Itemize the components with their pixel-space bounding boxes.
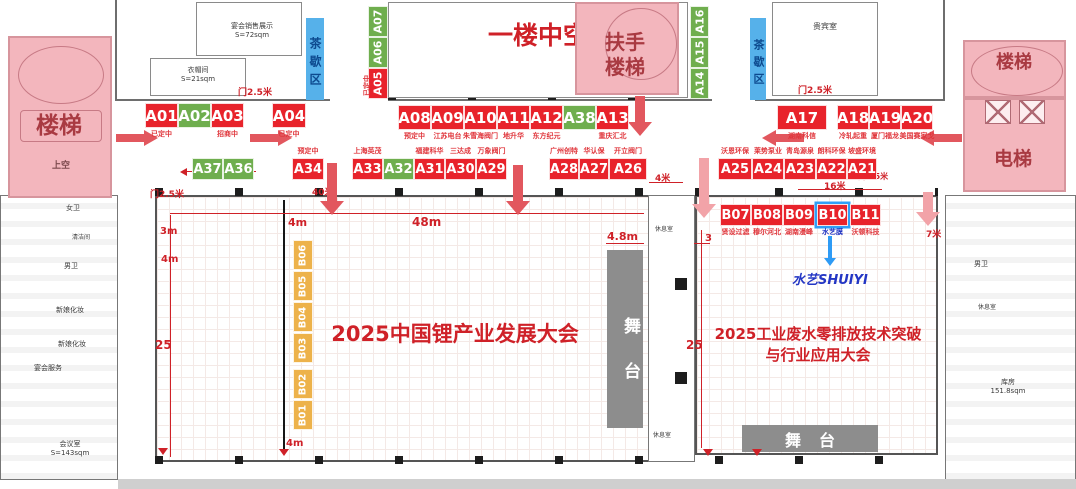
booth-label: A21: [848, 162, 876, 177]
dim-line-25-left: [170, 215, 171, 457]
booth-label: A22: [817, 162, 845, 177]
door-dim-c: 门2.5米: [150, 187, 184, 200]
dim-48m: 48m: [412, 215, 441, 229]
flow-arrow-down-corridor-icon: [692, 158, 716, 218]
dim-7mi: 7米: [926, 227, 941, 240]
booth-label: A18: [837, 109, 869, 127]
dim-4m-bottom: 4m: [286, 438, 303, 449]
service-strip-right: [945, 195, 1076, 480]
booth-label: A15: [693, 41, 706, 65]
booth-label: A32: [384, 162, 412, 177]
banquet-display-label: 宴会销售展示: [231, 22, 273, 30]
booth-label: A11: [497, 109, 529, 127]
bridal-makeup-2-label: 新娘化妆: [58, 340, 86, 348]
bottom-tick-3-icon: [752, 449, 762, 456]
booth-A26: A26: [609, 158, 647, 180]
booth-A04: A04: [272, 103, 306, 128]
spiral-stairs-label: 扶手楼梯: [602, 30, 648, 80]
booth-B07: B07: [720, 204, 751, 226]
booth-label: A36: [224, 162, 252, 177]
booth-note-A20: 美国赛家戈: [893, 133, 941, 140]
dim-4m-left: 4m: [161, 254, 178, 265]
dim-4mi: 4米: [655, 171, 670, 184]
cleaning-room-label: 清洁间: [72, 234, 90, 241]
booth-label: B04: [298, 306, 309, 328]
bottom-band: [118, 479, 1076, 489]
booth-A36: A36: [223, 158, 254, 180]
cloakroom-label: 衣帽间: [188, 66, 209, 74]
elevator-shaft-2: [1019, 100, 1045, 124]
booth-A33: A33: [352, 158, 383, 180]
stairs-right-label: 楼梯: [996, 48, 1032, 74]
booth-A34: A34: [292, 158, 324, 180]
booth-A13: A13: [596, 105, 629, 130]
dim-line-4-8m: [606, 243, 644, 244]
booth-note-B11: 沃顿科技: [842, 229, 889, 236]
corridor-center: [648, 195, 695, 462]
booth-label: A28: [550, 162, 578, 177]
booth-A03: A03: [211, 103, 244, 128]
corridor-column-2: [675, 372, 687, 384]
booth-B02: B02: [293, 369, 313, 399]
door-dim-a: 门2.5米: [238, 85, 272, 98]
dim-line-48m: [170, 213, 644, 214]
stage-right: 舞台: [742, 425, 878, 452]
booth-label: A12: [530, 109, 562, 127]
booth-note-A05: 已定中: [364, 75, 371, 96]
logo-pointer-arrow-icon: [824, 236, 836, 266]
booth-A28: A28: [549, 158, 579, 180]
booth-label: B11: [852, 208, 880, 223]
booth-label: A02: [178, 107, 210, 125]
booth-label: A08: [398, 109, 430, 127]
booth-A01: A01: [145, 103, 178, 128]
dim-line-row2-arrow-icon: [180, 168, 187, 176]
booth-label: B07: [722, 208, 750, 223]
banquet-service-label: 宴会服务: [34, 364, 62, 372]
lounge-mid-top-label: 休息室: [655, 226, 673, 233]
booth-label: A38: [563, 109, 595, 127]
booth-A22: A22: [816, 158, 847, 180]
storage-area: 151.8sqm: [991, 387, 1026, 395]
wall-top-left: [115, 99, 330, 101]
aisle-line: [283, 200, 285, 450]
storage-label: 库房: [1001, 378, 1015, 386]
mens-toilet-right-label: 男卫: [974, 260, 988, 268]
booth-note-A03: 招商中: [203, 131, 252, 138]
booth-label: A06: [372, 41, 385, 65]
dim-3m-left: 3m: [160, 226, 177, 237]
cloakroom-area: S=21sqm: [181, 75, 215, 83]
booth-B11: B11: [850, 204, 881, 226]
booth-A08: A08: [398, 105, 431, 130]
booth-A10: A10: [464, 105, 497, 130]
dim-25-right: 25: [686, 338, 703, 352]
booth-label: A27: [580, 162, 608, 177]
upper-void-label: 上空: [52, 158, 70, 171]
dim-3-right: 3: [705, 233, 712, 244]
stairs-left-label: 楼梯: [36, 106, 82, 140]
booth-A02: A02: [178, 103, 211, 128]
booth-label: B09: [785, 208, 813, 223]
wall-left-vert: [115, 0, 117, 100]
booth-label: A10: [464, 109, 496, 127]
booth-label: A13: [596, 109, 628, 127]
booth-label: A26: [614, 162, 642, 177]
booth-note-A04: 已定中: [264, 131, 314, 138]
booth-A11: A11: [497, 105, 530, 130]
dim-4m-top: 4m: [288, 216, 307, 229]
bottom-tick-1-icon: [158, 448, 168, 455]
booth-A19: A19: [869, 105, 901, 130]
booth-label: B02: [298, 373, 309, 395]
booth-B06: B06: [293, 240, 313, 270]
booth-label: B10: [819, 208, 847, 223]
booth-A18: A18: [837, 105, 869, 130]
booth-A23: A23: [784, 158, 816, 180]
vip-room-label: 贵宾室: [813, 22, 837, 31]
booth-label: A16: [693, 10, 706, 34]
booth-label: A04: [273, 107, 305, 125]
stairs-left-oval: [18, 46, 104, 104]
booth-note-A33: 上海英茂: [344, 148, 391, 155]
booth-label: A09: [431, 109, 463, 127]
mens-toilet-label: 男卫: [64, 262, 78, 270]
flow-arrow-down-spiral-icon: [628, 96, 652, 136]
bridal-makeup-1-label: 新娘化妆: [56, 306, 84, 314]
stage-left: 舞台: [607, 250, 643, 428]
booth-B05: B05: [293, 271, 313, 301]
booth-A24: A24: [752, 158, 784, 180]
booth-label: A01: [145, 107, 177, 125]
bottom-tick-2-icon: [703, 449, 713, 456]
booth-A05: A05: [368, 68, 388, 99]
booth-A20: A20: [901, 105, 933, 130]
hall-right-title-line2: 与行业应用大会: [698, 344, 938, 365]
elevator-shaft-1: [985, 100, 1011, 124]
aisle-line-arrow-icon: [279, 449, 289, 456]
booth-A38: A38: [563, 105, 596, 130]
booth-A14: A14: [690, 68, 709, 99]
booth-label: A33: [353, 162, 381, 177]
booth-label: B03: [298, 337, 309, 359]
dim-4-8m: 4.8m: [607, 230, 638, 243]
booth-A25: A25: [718, 158, 752, 180]
booth-A06: A06: [368, 37, 388, 68]
booth-note-A12: 东方纪元: [522, 133, 571, 140]
booth-B08: B08: [751, 204, 783, 226]
meeting-room-label: 会议室: [60, 440, 81, 448]
booth-B01: B01: [293, 400, 313, 430]
booth-label: A37: [193, 162, 221, 177]
lounge-mid-bottom-label: 休息室: [653, 432, 671, 439]
wall-top-right: [755, 99, 945, 101]
booth-label: B06: [298, 244, 309, 266]
columns-hall-left-top: [155, 188, 650, 196]
meeting-room-area: S=143sqm: [51, 449, 90, 457]
booth-note-A01: 已定中: [137, 131, 186, 138]
banquet-display-area: S=72sqm: [235, 31, 269, 39]
booth-label: B01: [298, 404, 309, 426]
shuiyi-logo: 水艺SHUIYI: [792, 269, 868, 288]
booth-note-A17: 湖南科信: [769, 133, 835, 140]
booth-A12: A12: [530, 105, 563, 130]
corridor-column-1: [675, 278, 687, 290]
booth-A15: A15: [690, 37, 709, 68]
booth-B03: B03: [293, 333, 313, 363]
booth-A30: A30: [445, 158, 476, 180]
booth-label: A20: [901, 109, 933, 127]
vip-room: [772, 2, 878, 96]
floor-plan: 一楼中空 楼梯 上空 扶手楼梯 楼梯 电梯 茶歇区 茶歇区 宴会销售展示 S=7…: [0, 0, 1076, 489]
hall-left-title: 2025中国锂产业发展大会: [310, 318, 600, 348]
hall-right-title-line1: 2025工业废水零排放技术突破: [698, 323, 938, 344]
booth-A29: A29: [476, 158, 507, 180]
booth-label: A03: [211, 107, 243, 125]
booth-label: A30: [446, 162, 474, 177]
dim-25-left: 25: [155, 338, 172, 352]
booth-label: A07: [372, 10, 385, 34]
booth-B10: B10: [817, 204, 848, 226]
tea-break-left: 茶歇区: [306, 18, 324, 100]
booth-label: A34: [294, 162, 322, 177]
womens-toilet-label: 女卫: [66, 204, 80, 212]
booth-label: A24: [754, 162, 782, 177]
booth-A21: A21: [847, 158, 877, 180]
dim-16mi: 16米: [824, 179, 846, 192]
booth-B04: B04: [293, 302, 313, 332]
booth-label: A25: [721, 162, 749, 177]
booth-A32: A32: [383, 158, 414, 180]
booth-label: A14: [693, 72, 706, 96]
tea-break-right: 茶歇区: [750, 18, 766, 100]
booth-note-A29: 万象阀门: [468, 148, 515, 155]
booth-label: A23: [786, 162, 814, 177]
booth-label: A17: [786, 109, 818, 127]
booth-note-A34: 预定中: [284, 148, 332, 155]
lounge-right-label: 休息室: [978, 304, 996, 311]
booth-A17: A17: [777, 105, 827, 130]
booth-label: A31: [415, 162, 443, 177]
booth-label: B08: [753, 208, 781, 223]
booth-B09: B09: [783, 204, 815, 226]
wall-right-vert: [943, 0, 945, 100]
service-strip-left: [0, 195, 118, 480]
booth-label: B05: [298, 275, 309, 297]
booth-note-A13: 重庆汇北: [588, 133, 637, 140]
booth-label: A19: [869, 109, 901, 127]
booth-A09: A09: [431, 105, 464, 130]
elevator-label: 电梯: [994, 144, 1032, 171]
booth-A27: A27: [579, 158, 609, 180]
booth-A37: A37: [192, 158, 223, 180]
booth-A16: A16: [690, 6, 709, 37]
booth-note-A26: 开立阀门: [601, 148, 655, 155]
booth-A31: A31: [414, 158, 445, 180]
flow-arrow-down-left-hall-2-icon: [506, 165, 530, 215]
booth-A07: A07: [368, 6, 388, 37]
door-dim-b: 门2.5米: [798, 83, 832, 96]
booth-note-A21: 坡盛环境: [839, 148, 885, 155]
columns-hall-bottom: [155, 456, 938, 464]
booth-label: A29: [477, 162, 505, 177]
flow-arrow-down-right-hall-icon: [916, 192, 940, 226]
booth-label: A05: [372, 72, 385, 96]
